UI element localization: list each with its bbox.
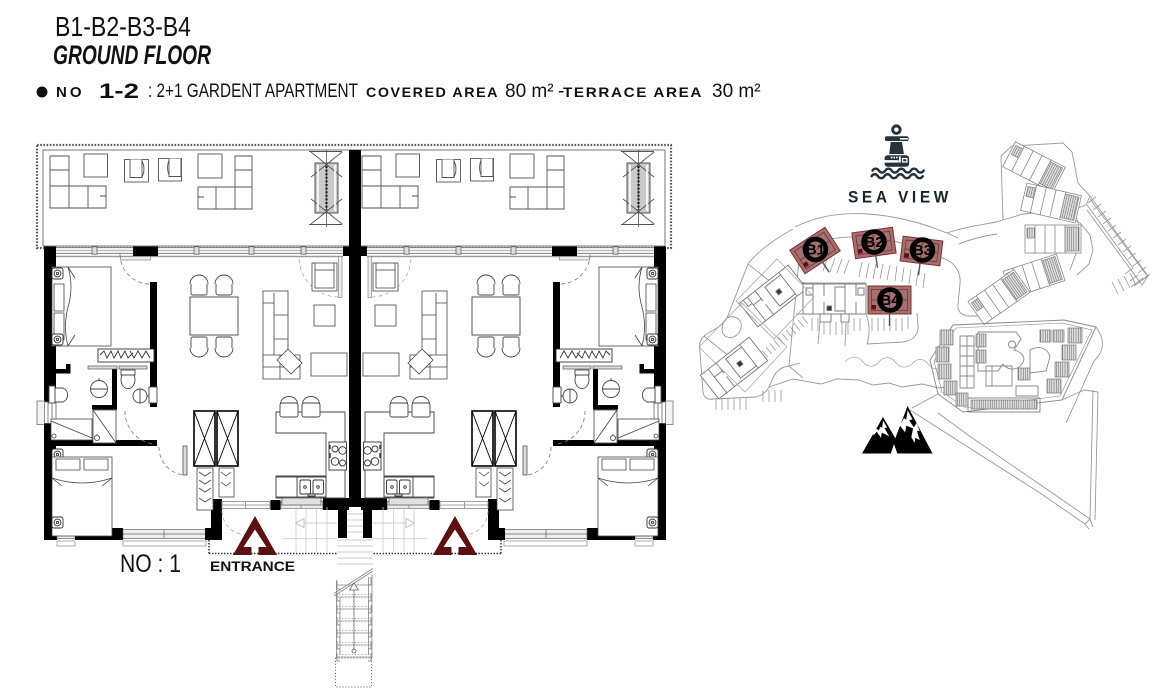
svg-text:SEA VIEW: SEA VIEW — [848, 188, 952, 207]
svg-text:B4: B4 — [880, 292, 900, 309]
svg-text:80 m²: 80 m² — [505, 81, 554, 102]
svg-text:ENTRANCE: ENTRANCE — [210, 559, 295, 574]
svg-text:1-2: 1-2 — [99, 80, 139, 103]
svg-text:NO : 1: NO : 1 — [120, 550, 181, 578]
svg-text:B2: B2 — [864, 234, 883, 251]
svg-text:B1: B1 — [806, 242, 825, 259]
svg-text:B1-B2-B3-B4: B1-B2-B3-B4 — [55, 11, 191, 42]
svg-text:TERRACE AREA: TERRACE AREA — [563, 84, 703, 100]
svg-text:COVERED AREA: COVERED AREA — [366, 84, 499, 100]
svg-text:30 m²: 30 m² — [712, 81, 761, 102]
svg-text:GROUND FLOOR: GROUND FLOOR — [53, 40, 211, 70]
svg-text:: 2+1 GARDENT APARTMENT: : 2+1 GARDENT APARTMENT — [148, 81, 358, 102]
svg-text:NO: NO — [56, 84, 85, 101]
svg-text:B3: B3 — [913, 242, 932, 259]
